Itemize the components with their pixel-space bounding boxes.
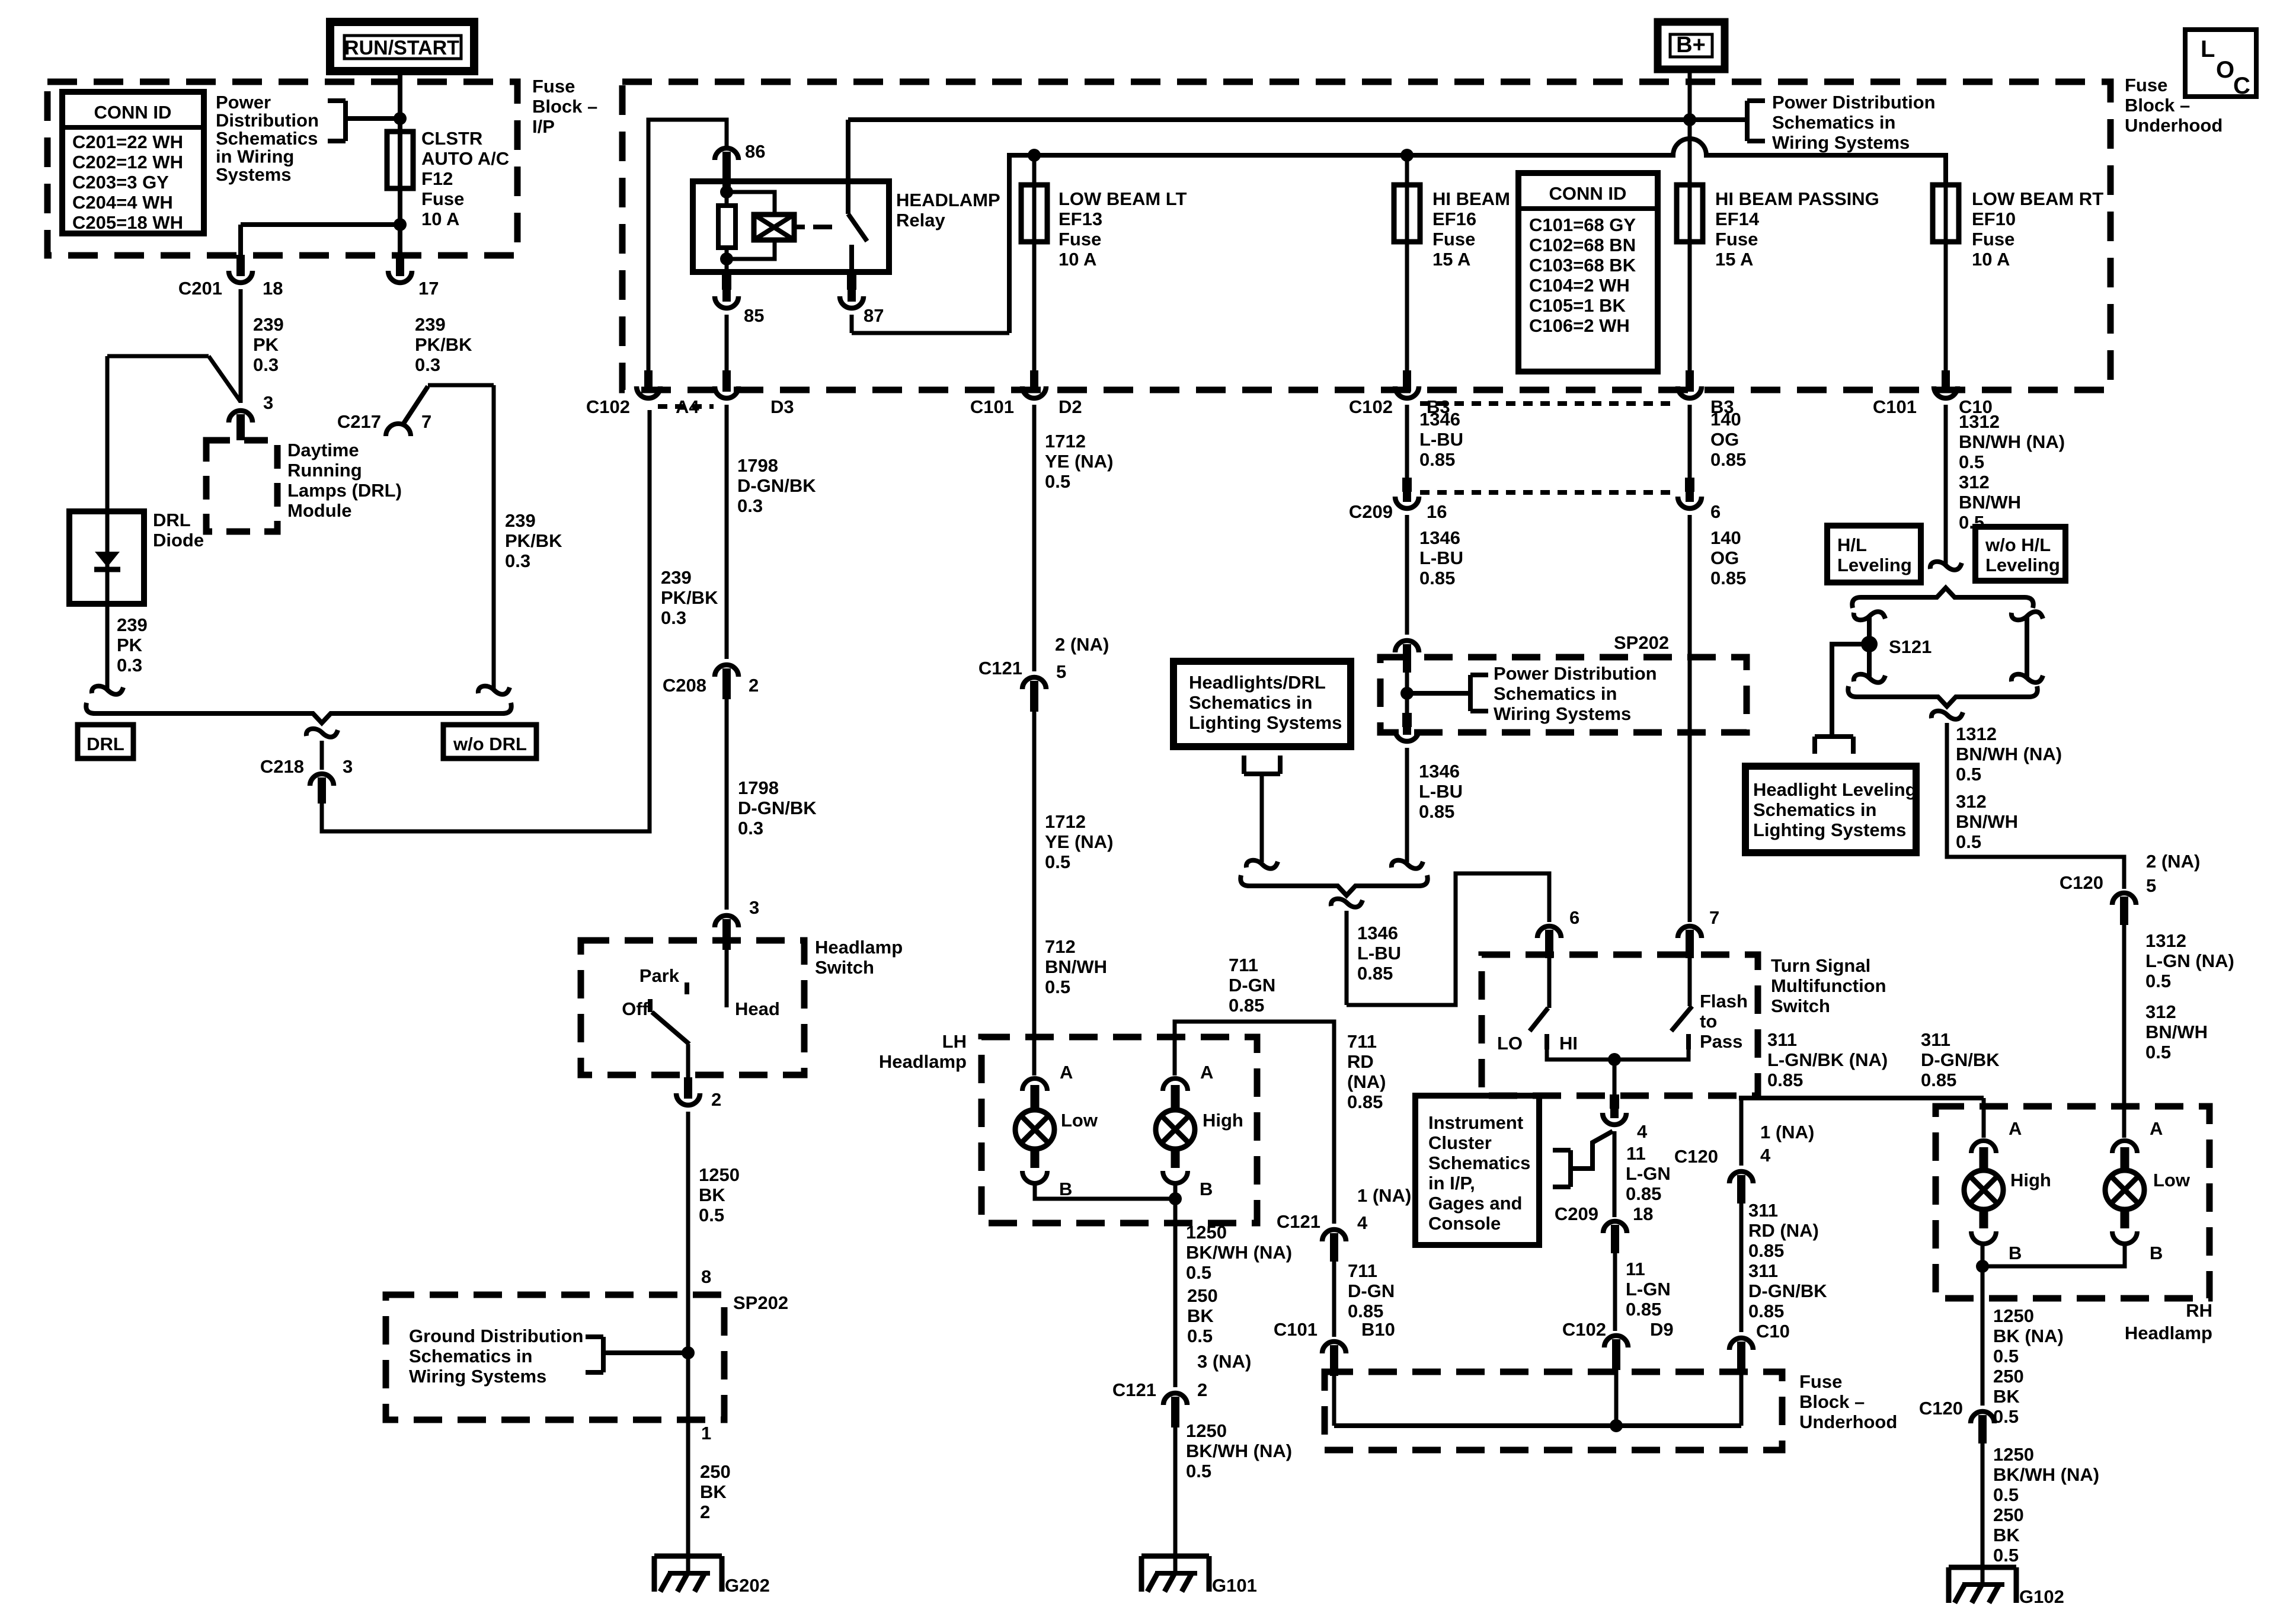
svg-text:15 A: 15 A	[1715, 249, 1753, 270]
svg-text:EF16: EF16	[1432, 209, 1476, 229]
svg-text:L-BU: L-BU	[1419, 781, 1463, 802]
svg-text:G101: G101	[1212, 1575, 1257, 1596]
svg-text:Cluster: Cluster	[1428, 1132, 1492, 1153]
svg-text:712: 712	[1045, 936, 1076, 957]
svg-text:Lighting Systems: Lighting Systems	[1189, 712, 1342, 733]
svg-text:L: L	[2201, 36, 2215, 62]
svg-text:711: 711	[1348, 1260, 1377, 1281]
svg-text:L-BU: L-BU	[1419, 548, 1463, 568]
svg-text:F12: F12	[421, 168, 453, 189]
svg-text:0.85: 0.85	[1419, 801, 1454, 822]
svg-text:0.5: 0.5	[1045, 977, 1070, 997]
svg-text:C209: C209	[1349, 501, 1393, 522]
svg-text:5: 5	[2146, 875, 2156, 896]
svg-text:0.85: 0.85	[1748, 1301, 1784, 1321]
svg-text:C102: C102	[1349, 396, 1393, 417]
svg-text:BK/WH (NA): BK/WH (NA)	[1186, 1242, 1292, 1263]
svg-text:DRL: DRL	[87, 734, 124, 754]
svg-text:0.5: 0.5	[1993, 1406, 2019, 1427]
svg-text:B10: B10	[1361, 1319, 1395, 1340]
svg-text:D9: D9	[1650, 1319, 1674, 1340]
svg-text:1250: 1250	[699, 1164, 740, 1185]
svg-text:1346: 1346	[1419, 409, 1460, 430]
svg-text:C106=2 WH: C106=2 WH	[1529, 315, 1630, 336]
svg-text:4: 4	[1637, 1121, 1648, 1142]
svg-text:140: 140	[1710, 527, 1741, 548]
svg-text:Pass: Pass	[1700, 1031, 1742, 1052]
svg-text:2: 2	[700, 1502, 710, 1522]
svg-text:A: A	[1060, 1062, 1073, 1083]
svg-text:Low: Low	[2153, 1170, 2191, 1190]
svg-text:BK (NA): BK (NA)	[1993, 1326, 2064, 1346]
svg-text:D-GN/BK: D-GN/BK	[738, 798, 817, 818]
svg-text:Headlamp: Headlamp	[879, 1051, 967, 1072]
svg-text:5: 5	[1056, 661, 1066, 682]
svg-text:Schematics in: Schematics in	[1494, 683, 1617, 704]
svg-text:1 (NA): 1 (NA)	[1357, 1185, 1411, 1206]
svg-text:D-GN/BK: D-GN/BK	[1921, 1049, 2000, 1070]
svg-text:C120: C120	[2060, 872, 2103, 893]
svg-text:G102: G102	[2019, 1586, 2064, 1607]
svg-text:250: 250	[700, 1461, 731, 1482]
svg-text:0.5: 0.5	[699, 1205, 724, 1225]
svg-text:BN/WH: BN/WH	[1956, 811, 2018, 832]
svg-text:PK/BK: PK/BK	[505, 530, 562, 551]
svg-text:1346: 1346	[1357, 923, 1398, 943]
svg-text:0.85: 0.85	[1347, 1092, 1383, 1112]
svg-text:D-GN/BK: D-GN/BK	[1748, 1281, 1827, 1301]
svg-text:CLSTR: CLSTR	[421, 128, 482, 149]
svg-text:1798: 1798	[738, 777, 779, 798]
svg-text:140: 140	[1710, 409, 1741, 430]
svg-text:1250: 1250	[1993, 1444, 2034, 1465]
svg-text:PK: PK	[253, 334, 279, 355]
svg-text:C208: C208	[663, 675, 706, 696]
svg-text:G202: G202	[725, 1575, 770, 1596]
svg-text:C121: C121	[978, 658, 1022, 678]
svg-text:High: High	[1203, 1110, 1243, 1131]
svg-text:Schematics in: Schematics in	[409, 1346, 532, 1366]
svg-text:C120: C120	[1674, 1146, 1718, 1167]
svg-text:Power Distribution: Power Distribution	[1494, 663, 1657, 684]
svg-text:1250: 1250	[1186, 1222, 1227, 1243]
svg-text:L-GN: L-GN	[1626, 1163, 1671, 1184]
svg-text:A: A	[2009, 1118, 2022, 1139]
svg-text:Turn Signal: Turn Signal	[1771, 955, 1870, 976]
svg-text:BK: BK	[1993, 1525, 2020, 1545]
svg-text:in I/P,: in I/P,	[1428, 1173, 1475, 1193]
svg-text:0.3: 0.3	[253, 354, 279, 375]
svg-text:0.85: 0.85	[1626, 1183, 1661, 1204]
svg-text:B+: B+	[1676, 33, 1706, 57]
svg-text:0.85: 0.85	[1767, 1070, 1803, 1090]
svg-text:311: 311	[1748, 1200, 1778, 1221]
svg-text:2: 2	[1197, 1379, 1207, 1400]
svg-text:BK/WH (NA): BK/WH (NA)	[1993, 1464, 2099, 1485]
svg-text:0.5: 0.5	[1959, 452, 1984, 472]
svg-text:I/P: I/P	[532, 116, 555, 137]
svg-text:3: 3	[263, 392, 273, 413]
svg-text:0.85: 0.85	[1348, 1301, 1383, 1321]
svg-text:3: 3	[749, 897, 759, 918]
svg-text:EF14: EF14	[1715, 209, 1760, 229]
svg-text:Switch: Switch	[1771, 996, 1830, 1016]
svg-text:BN/WH: BN/WH	[1045, 956, 1107, 977]
svg-text:2: 2	[749, 675, 759, 696]
svg-text:Power Distribution: Power Distribution	[1772, 92, 1936, 113]
svg-text:0.85: 0.85	[1419, 568, 1455, 588]
svg-text:Wiring Systems: Wiring Systems	[1772, 132, 1910, 153]
svg-text:0.5: 0.5	[1956, 831, 1981, 852]
svg-text:311: 311	[1748, 1260, 1778, 1281]
svg-text:C202=12 WH: C202=12 WH	[72, 152, 183, 172]
svg-text:15 A: 15 A	[1432, 249, 1470, 270]
svg-text:239: 239	[415, 314, 446, 335]
svg-text:16: 16	[1427, 501, 1447, 522]
svg-text:LO: LO	[1497, 1033, 1523, 1054]
svg-text:EF13: EF13	[1059, 209, 1102, 229]
svg-text:1346: 1346	[1419, 761, 1460, 782]
svg-text:Systems: Systems	[216, 164, 292, 185]
svg-text:Fuse: Fuse	[532, 76, 575, 97]
svg-text:Relay: Relay	[896, 210, 945, 231]
svg-text:312: 312	[1959, 472, 1990, 492]
svg-text:Headlamp: Headlamp	[815, 937, 903, 958]
svg-text:w/o DRL: w/o DRL	[453, 734, 527, 754]
svg-text:C203=3 GY: C203=3 GY	[72, 172, 169, 193]
svg-text:2 (NA): 2 (NA)	[2146, 851, 2200, 872]
svg-text:0.5: 0.5	[1993, 1484, 2019, 1505]
svg-text:LOW BEAM LT: LOW BEAM LT	[1059, 188, 1187, 209]
svg-text:PK/BK: PK/BK	[661, 587, 718, 608]
svg-text:RUN/START: RUN/START	[344, 37, 459, 59]
svg-text:Block –: Block –	[2125, 95, 2190, 116]
svg-text:Leveling: Leveling	[1837, 555, 1912, 575]
svg-text:A: A	[2150, 1118, 2163, 1139]
svg-text:0.5: 0.5	[1045, 471, 1070, 492]
svg-text:2 (NA): 2 (NA)	[1055, 634, 1109, 655]
svg-text:OG: OG	[1710, 548, 1739, 568]
svg-text:Switch: Switch	[815, 957, 874, 978]
svg-text:Fuse: Fuse	[1432, 229, 1475, 249]
svg-text:Schematics in: Schematics in	[1753, 799, 1876, 820]
svg-text:Underhood: Underhood	[1799, 1411, 1897, 1432]
svg-text:0.5: 0.5	[1186, 1262, 1211, 1283]
svg-text:CONN ID: CONN ID	[94, 102, 172, 123]
svg-text:Fuse: Fuse	[1972, 229, 2014, 249]
svg-text:AUTO A/C: AUTO A/C	[421, 148, 509, 169]
svg-text:0.5: 0.5	[2145, 1042, 2171, 1062]
svg-text:0.85: 0.85	[1748, 1240, 1784, 1261]
svg-text:Multifunction: Multifunction	[1771, 975, 1886, 996]
svg-text:B: B	[1059, 1179, 1072, 1199]
svg-text:RH: RH	[2186, 1300, 2212, 1321]
svg-text:Fuse: Fuse	[1715, 229, 1758, 249]
svg-text:4: 4	[1357, 1212, 1368, 1233]
svg-text:C218: C218	[260, 756, 304, 777]
svg-text:B: B	[1200, 1179, 1213, 1199]
svg-text:311: 311	[1767, 1029, 1797, 1050]
svg-text:0.5: 0.5	[1186, 1461, 1211, 1481]
svg-text:B: B	[2009, 1243, 2022, 1263]
svg-text:87: 87	[864, 305, 884, 326]
svg-text:HI: HI	[1559, 1033, 1578, 1054]
svg-text:250: 250	[1993, 1366, 2024, 1387]
svg-text:C121: C121	[1277, 1211, 1320, 1232]
svg-text:Module: Module	[287, 500, 352, 521]
svg-text:High: High	[2010, 1170, 2051, 1190]
svg-text:17: 17	[418, 278, 439, 299]
svg-text:L-GN (NA): L-GN (NA)	[2145, 950, 2234, 971]
svg-text:Leveling: Leveling	[1985, 555, 2060, 575]
svg-text:85: 85	[744, 305, 764, 326]
svg-text:10 A: 10 A	[421, 209, 459, 229]
svg-text:BK: BK	[699, 1185, 725, 1205]
svg-text:C101=68 GY: C101=68 GY	[1529, 215, 1636, 235]
svg-text:C10: C10	[1756, 1321, 1790, 1342]
svg-text:C102: C102	[1562, 1319, 1606, 1340]
svg-text:Fuse: Fuse	[1799, 1371, 1842, 1392]
svg-text:Lighting Systems: Lighting Systems	[1753, 820, 1906, 840]
svg-text:11: 11	[1626, 1143, 1646, 1164]
svg-text:OG: OG	[1710, 429, 1739, 450]
svg-text:C101: C101	[1274, 1319, 1318, 1340]
svg-text:239: 239	[505, 510, 536, 531]
svg-text:(NA): (NA)	[1347, 1071, 1386, 1092]
svg-text:3 (NA): 3 (NA)	[1197, 1351, 1251, 1372]
svg-text:C104=2 WH: C104=2 WH	[1529, 275, 1630, 296]
svg-text:Block –: Block –	[532, 96, 597, 117]
svg-text:D-GN/BK: D-GN/BK	[737, 475, 816, 496]
svg-text:C101: C101	[1873, 396, 1917, 417]
svg-text:C101: C101	[970, 396, 1014, 417]
svg-text:0.3: 0.3	[737, 495, 763, 516]
svg-text:1250: 1250	[1993, 1305, 2034, 1326]
svg-text:C205=18 WH: C205=18 WH	[72, 212, 183, 233]
svg-text:C: C	[2233, 73, 2250, 99]
svg-text:RD (NA): RD (NA)	[1748, 1220, 1819, 1241]
svg-text:0.3: 0.3	[117, 655, 142, 676]
svg-text:Gages and: Gages and	[1428, 1193, 1523, 1214]
svg-text:Instrument: Instrument	[1428, 1112, 1523, 1133]
svg-text:0.85: 0.85	[1626, 1299, 1661, 1320]
svg-text:C121: C121	[1112, 1379, 1156, 1400]
svg-text:0.85: 0.85	[1710, 449, 1746, 470]
svg-text:312: 312	[2145, 1001, 2176, 1022]
svg-text:Headlamp: Headlamp	[2125, 1323, 2212, 1343]
svg-text:Console: Console	[1428, 1213, 1501, 1234]
svg-text:Underhood: Underhood	[2125, 115, 2223, 136]
svg-text:239: 239	[661, 567, 692, 588]
svg-text:D3: D3	[770, 396, 794, 417]
svg-text:C120: C120	[1919, 1398, 1963, 1419]
svg-text:0.3: 0.3	[661, 607, 686, 628]
svg-text:S121: S121	[1889, 636, 1932, 657]
svg-text:BK: BK	[1993, 1386, 2020, 1407]
svg-text:711: 711	[1229, 955, 1258, 975]
svg-text:Ground Distribution: Ground Distribution	[409, 1326, 583, 1346]
svg-text:Diode: Diode	[153, 530, 204, 550]
svg-text:1312: 1312	[1959, 411, 2000, 432]
svg-text:C201=22 WH: C201=22 WH	[72, 132, 183, 152]
svg-text:LH: LH	[942, 1031, 967, 1052]
svg-text:239: 239	[253, 314, 284, 335]
svg-text:HI BEAM PASSING: HI BEAM PASSING	[1715, 188, 1879, 209]
svg-text:Headlights/DRL: Headlights/DRL	[1189, 672, 1326, 693]
svg-text:BK: BK	[700, 1481, 727, 1502]
svg-text:EF10: EF10	[1972, 209, 2016, 229]
svg-text:1: 1	[701, 1423, 711, 1443]
svg-text:Schematics in: Schematics in	[1189, 692, 1312, 713]
svg-text:HEADLAMP: HEADLAMP	[896, 190, 1000, 210]
svg-text:10 A: 10 A	[1059, 249, 1096, 270]
svg-text:250: 250	[1187, 1285, 1218, 1306]
svg-text:Head: Head	[735, 998, 780, 1019]
svg-text:LOW BEAM RT: LOW BEAM RT	[1972, 188, 2103, 209]
svg-text:O: O	[2216, 57, 2234, 83]
svg-text:C217: C217	[337, 411, 381, 432]
svg-text:0.3: 0.3	[738, 818, 763, 838]
svg-text:Running: Running	[287, 460, 362, 481]
svg-text:Wiring Systems: Wiring Systems	[409, 1366, 546, 1387]
svg-text:D-GN: D-GN	[1229, 975, 1275, 996]
svg-text:BN/WH (NA): BN/WH (NA)	[1956, 744, 2062, 764]
svg-text:6: 6	[1710, 501, 1721, 522]
svg-text:BN/WH: BN/WH	[1959, 492, 2021, 513]
svg-text:0.85: 0.85	[1357, 963, 1393, 984]
svg-text:BK/WH (NA): BK/WH (NA)	[1186, 1441, 1292, 1461]
svg-text:Park: Park	[639, 965, 680, 986]
svg-text:312: 312	[1956, 791, 1987, 812]
svg-text:Fuse: Fuse	[2125, 75, 2167, 95]
svg-text:250: 250	[1993, 1505, 2024, 1525]
svg-text:C209: C209	[1555, 1204, 1598, 1224]
svg-text:7: 7	[1709, 907, 1719, 928]
svg-text:SP202: SP202	[1614, 632, 1669, 653]
svg-text:BN/WH (NA): BN/WH (NA)	[1959, 431, 2065, 452]
svg-text:0.5: 0.5	[1993, 1346, 2019, 1366]
svg-text:2: 2	[711, 1089, 721, 1110]
svg-text:A: A	[1200, 1062, 1213, 1083]
svg-text:PK/BK: PK/BK	[415, 334, 472, 355]
svg-text:Schematics in: Schematics in	[1772, 112, 1895, 133]
svg-text:CONN ID: CONN ID	[1549, 183, 1627, 204]
svg-text:4: 4	[1760, 1145, 1771, 1166]
svg-text:3: 3	[343, 756, 353, 777]
svg-text:to: to	[1700, 1011, 1717, 1032]
svg-text:1312: 1312	[2145, 930, 2186, 951]
svg-text:BN/WH: BN/WH	[2145, 1022, 2208, 1042]
svg-text:Block –: Block –	[1799, 1391, 1865, 1412]
svg-text:Lamps (DRL): Lamps (DRL)	[287, 480, 402, 501]
svg-text:C105=1 BK: C105=1 BK	[1529, 295, 1626, 316]
svg-text:Wiring Systems: Wiring Systems	[1494, 703, 1631, 724]
svg-text:0.3: 0.3	[505, 550, 530, 571]
svg-text:0.85: 0.85	[1921, 1070, 1956, 1090]
svg-text:0.5: 0.5	[1956, 764, 1981, 785]
svg-text:RD: RD	[1347, 1051, 1374, 1072]
svg-text:311: 311	[1921, 1029, 1950, 1050]
svg-text:0.3: 0.3	[415, 354, 440, 375]
svg-text:1346: 1346	[1419, 527, 1460, 548]
svg-text:DRL: DRL	[153, 510, 191, 530]
svg-text:0.5: 0.5	[1045, 852, 1070, 872]
svg-text:Low: Low	[1061, 1110, 1098, 1131]
svg-text:1312: 1312	[1956, 724, 1997, 744]
svg-text:1712: 1712	[1045, 811, 1086, 832]
svg-text:B: B	[2150, 1243, 2163, 1263]
svg-text:7: 7	[421, 411, 431, 432]
svg-text:0.85: 0.85	[1419, 449, 1455, 470]
svg-text:C102: C102	[586, 396, 630, 417]
svg-text:0.5: 0.5	[1993, 1545, 2019, 1566]
svg-text:0.85: 0.85	[1229, 995, 1264, 1016]
svg-text:86: 86	[745, 141, 765, 162]
svg-text:C204=4 WH: C204=4 WH	[72, 192, 173, 213]
svg-text:711: 711	[1347, 1031, 1377, 1052]
svg-text:YE (NA): YE (NA)	[1045, 831, 1113, 852]
svg-text:1798: 1798	[737, 455, 778, 476]
svg-text:L-BU: L-BU	[1419, 429, 1463, 450]
svg-text:H/L: H/L	[1837, 534, 1867, 555]
svg-text:PK: PK	[117, 635, 143, 655]
svg-text:6: 6	[1569, 907, 1579, 928]
svg-text:1250: 1250	[1186, 1420, 1227, 1441]
svg-text:Daytime: Daytime	[287, 440, 359, 460]
svg-text:Headlight Leveling: Headlight Leveling	[1753, 779, 1917, 800]
svg-text:BK: BK	[1187, 1305, 1214, 1326]
svg-text:L-GN/BK (NA): L-GN/BK (NA)	[1767, 1049, 1888, 1070]
svg-text:Fuse: Fuse	[421, 188, 464, 209]
svg-text:0.5: 0.5	[2145, 971, 2171, 991]
svg-text:1 (NA): 1 (NA)	[1760, 1122, 1814, 1142]
svg-text:C102=68 BN: C102=68 BN	[1529, 235, 1636, 255]
svg-text:w/o H/L: w/o H/L	[1985, 534, 2051, 555]
svg-text:D-GN: D-GN	[1348, 1281, 1395, 1301]
svg-text:10 A: 10 A	[1972, 249, 2010, 270]
svg-text:Off: Off	[622, 998, 648, 1019]
svg-text:HI BEAM: HI BEAM	[1432, 188, 1510, 209]
svg-text:D2: D2	[1059, 396, 1082, 417]
svg-text:18: 18	[263, 278, 283, 299]
svg-text:1712: 1712	[1045, 431, 1086, 452]
svg-text:11: 11	[1626, 1259, 1645, 1279]
svg-text:0.85: 0.85	[1710, 568, 1746, 588]
svg-text:18: 18	[1633, 1204, 1653, 1224]
svg-text:Schematics: Schematics	[1428, 1153, 1530, 1173]
svg-text:L-BU: L-BU	[1357, 943, 1401, 964]
svg-text:SP202: SP202	[733, 1292, 788, 1313]
svg-text:C201: C201	[178, 278, 222, 299]
svg-text:Fuse: Fuse	[1059, 229, 1101, 249]
svg-text:YE (NA): YE (NA)	[1045, 451, 1113, 472]
svg-text:8: 8	[701, 1266, 711, 1287]
svg-text:Flash: Flash	[1700, 991, 1748, 1012]
svg-text:L-GN: L-GN	[1626, 1279, 1671, 1299]
svg-text:C103=68 BK: C103=68 BK	[1529, 255, 1636, 276]
svg-text:0.5: 0.5	[1187, 1326, 1213, 1346]
svg-text:239: 239	[117, 614, 148, 635]
